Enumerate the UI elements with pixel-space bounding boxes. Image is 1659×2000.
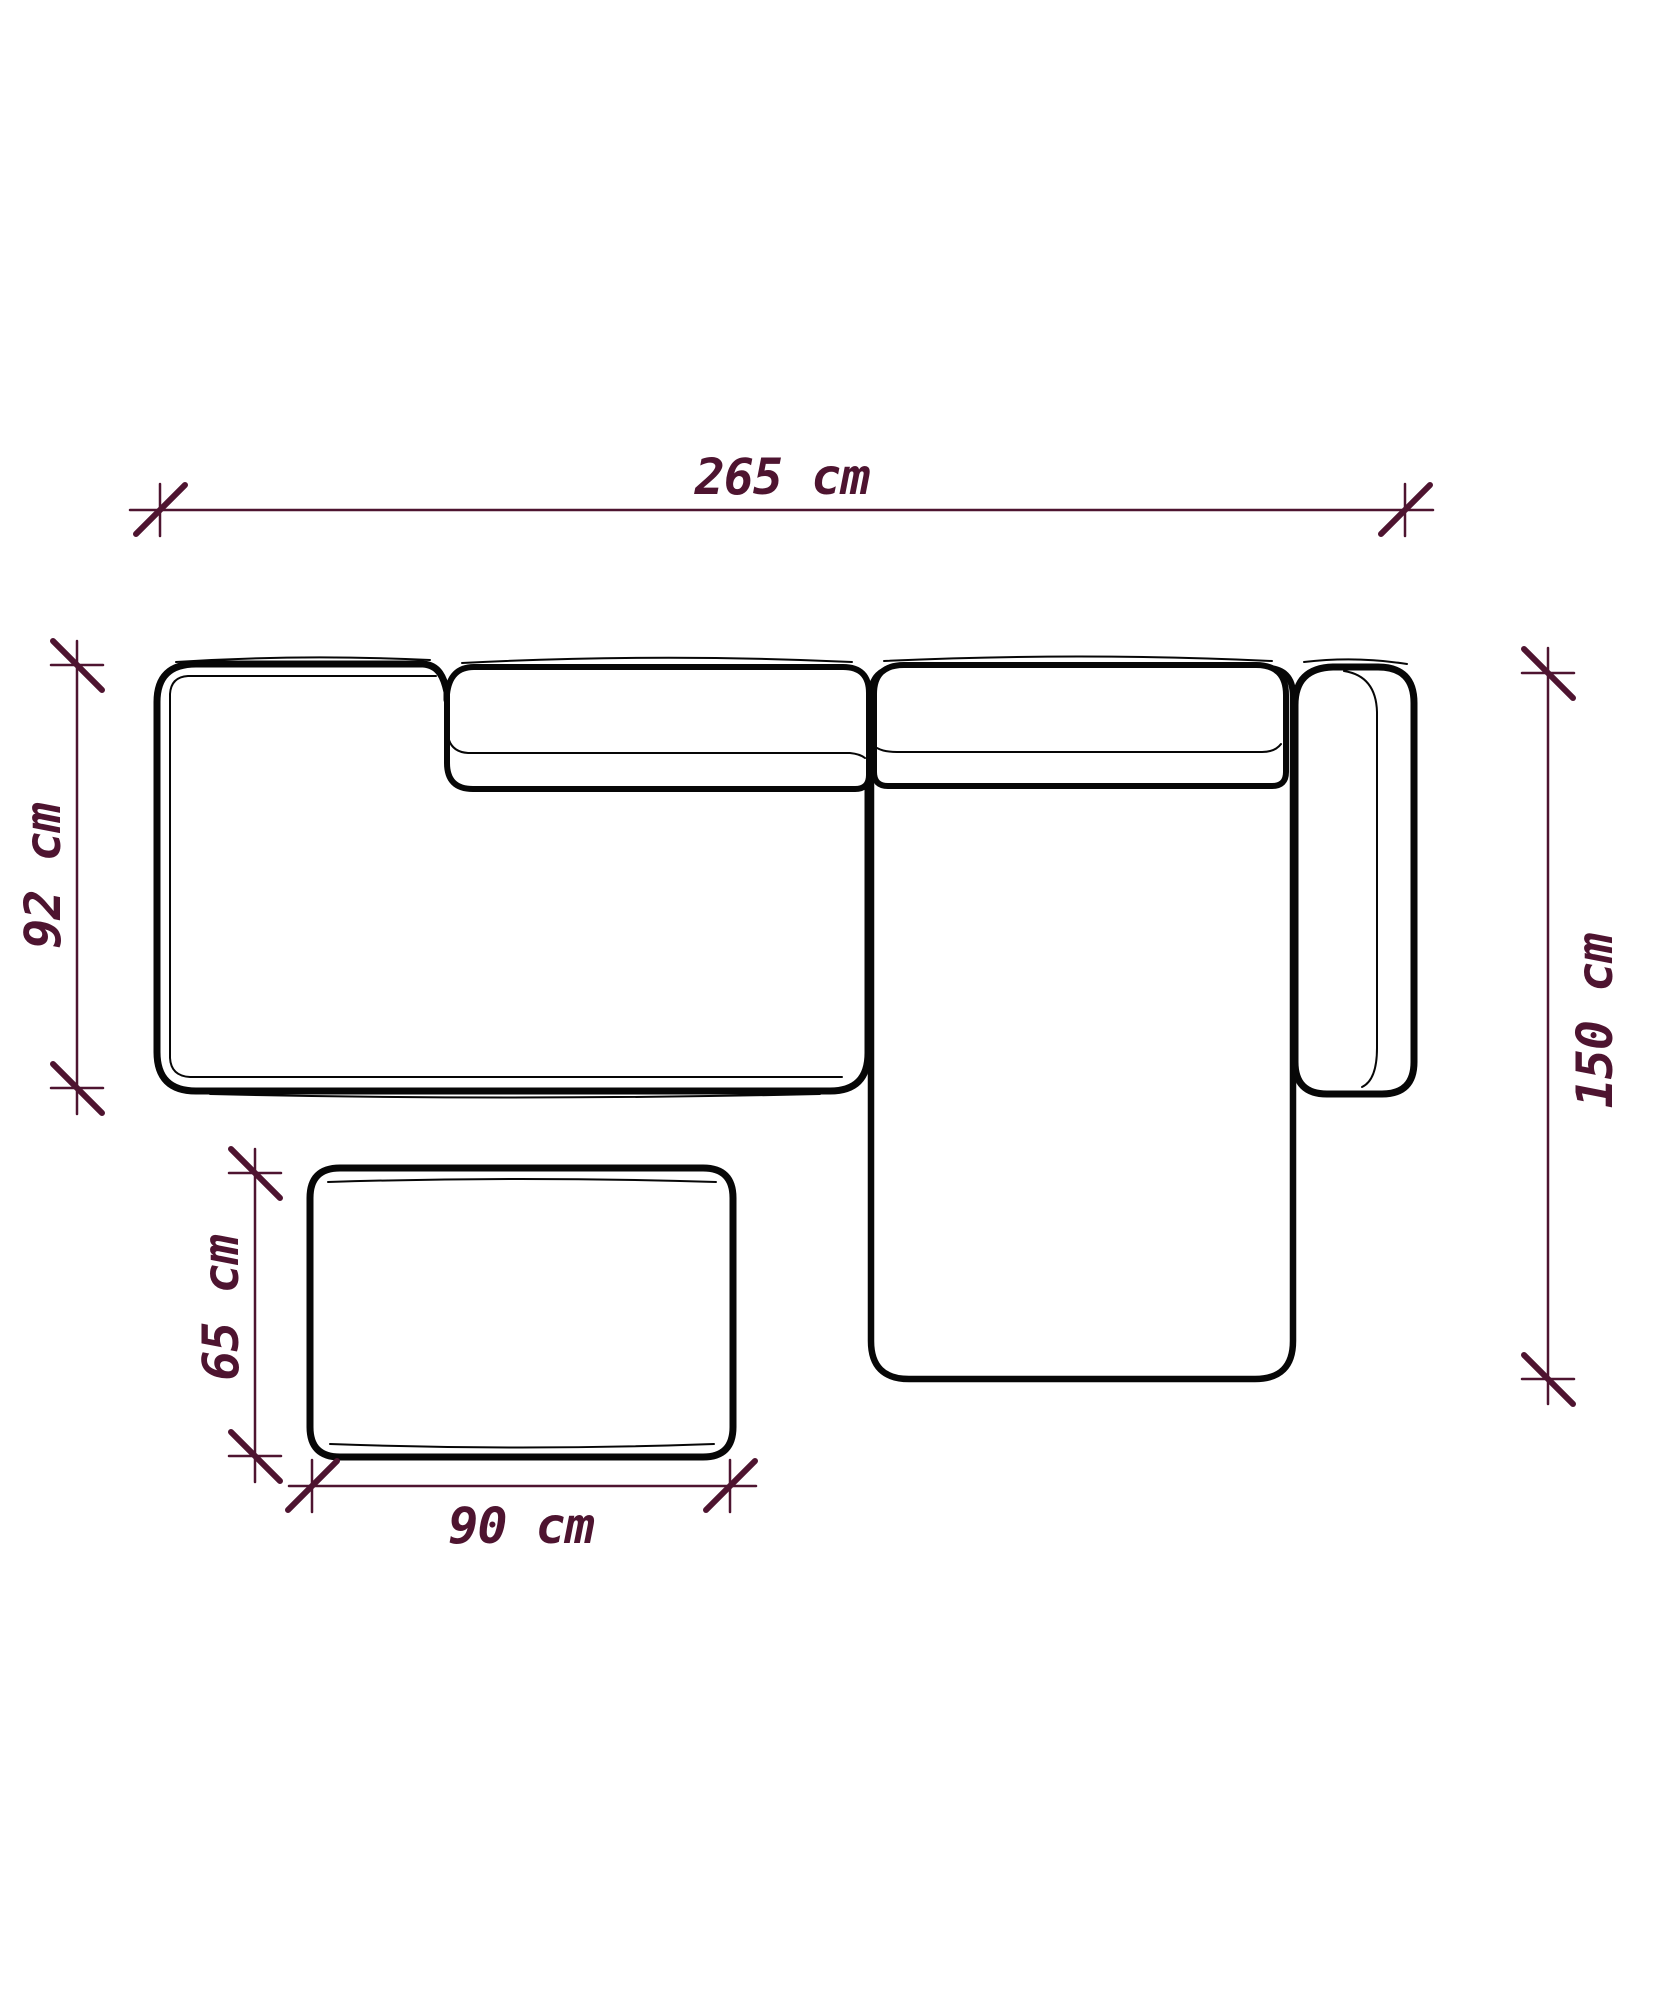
left-module-bottom-sketch-line <box>210 1094 820 1098</box>
sofa-top-sketch-line-3 <box>884 657 1272 662</box>
sofa-top-sketch-line-2 <box>462 658 852 663</box>
armrest-top-sketch-line <box>1304 659 1407 664</box>
armrest <box>1295 667 1414 1094</box>
seat-cushion-right <box>874 665 1286 786</box>
ottoman <box>310 1168 733 1457</box>
overall-width-label: 265 cm <box>694 448 871 506</box>
furniture-dimension-drawing: 265 cm 92 cm 150 cm 65 cm 90 cm <box>0 0 1659 2000</box>
left-depth-label: 92 cm <box>14 802 72 948</box>
chaise-depth-label: 150 cm <box>1566 933 1624 1109</box>
ottoman-width-label: 90 cm <box>448 1497 594 1555</box>
ottoman-depth-label: 65 cm <box>192 1234 250 1380</box>
sofa-outline-group <box>157 657 1414 1458</box>
seat-cushion-left <box>447 667 869 789</box>
sofa-top-view-diagram: 265 cm 92 cm 150 cm 65 cm 90 cm <box>0 0 1659 2000</box>
